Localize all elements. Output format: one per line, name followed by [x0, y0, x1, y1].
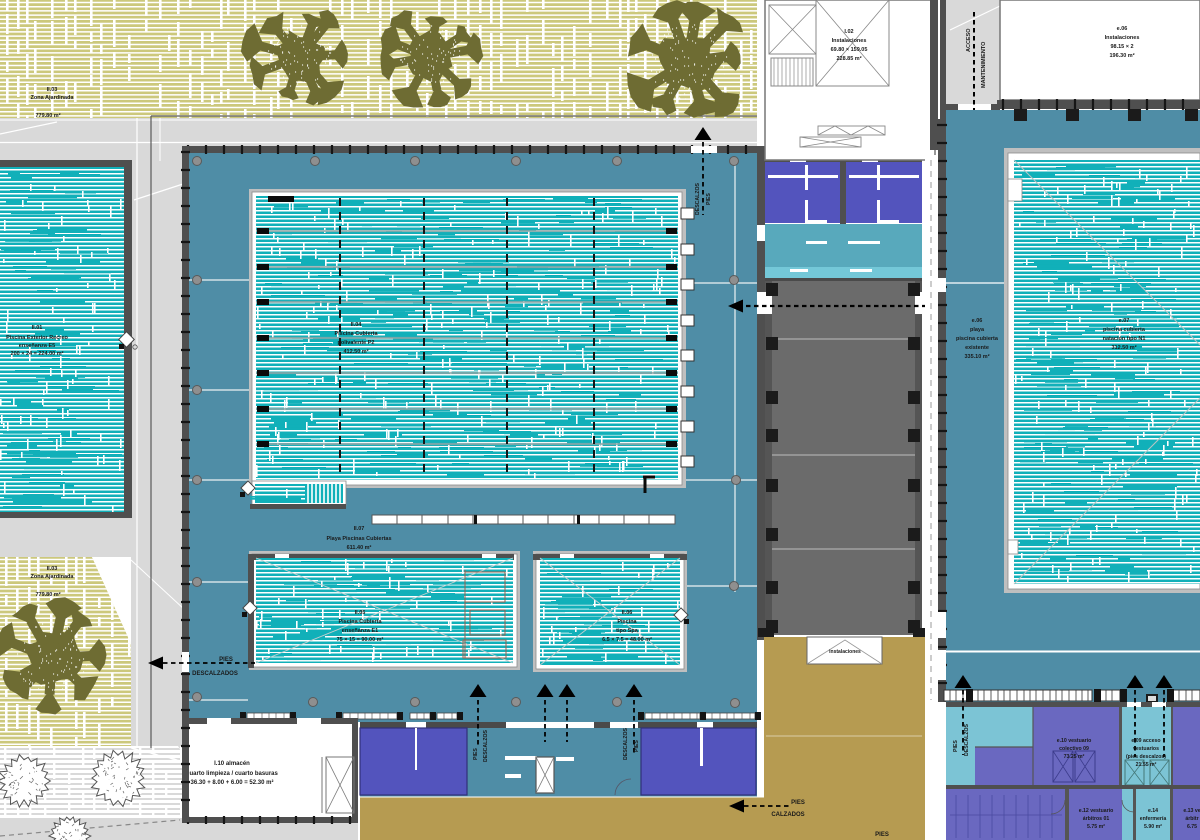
svg-text:DESCALZOS: DESCALZOS: [695, 182, 701, 215]
svg-text:enseñanza E5: enseñanza E5: [19, 343, 55, 349]
svg-text:II.03: II.03: [47, 566, 58, 572]
svg-text:Instalaciones: Instalaciones: [1105, 35, 1140, 41]
svg-text:DESCALZOS: DESCALZOS: [964, 723, 970, 756]
svg-text:I.02: I.02: [844, 29, 853, 35]
svg-text:DESCALZOS: DESCALZOS: [623, 727, 629, 760]
svg-text:73.25 m²: 73.25 m²: [1064, 754, 1085, 760]
svg-text:e.13 ve: e.13 ve: [1183, 808, 1200, 814]
svg-text:Piscina Cubierta: Piscina Cubierta: [338, 619, 382, 625]
svg-text:69.80 × 159.05: 69.80 × 159.05: [831, 47, 868, 53]
svg-text:PIES: PIES: [219, 657, 233, 663]
svg-text:5.90 m²: 5.90 m²: [1144, 824, 1162, 830]
svg-text:DESCALZOS: DESCALZOS: [483, 729, 489, 762]
svg-text:Zona Ajardinada: Zona Ajardinada: [31, 574, 75, 580]
svg-text:335.10 m²: 335.10 m²: [964, 353, 989, 360]
svg-text:(pies descalzos): (pies descalzos): [1126, 754, 1166, 760]
svg-text:Playa Piscinas Cubiertas: Playa Piscinas Cubiertas: [326, 536, 391, 542]
svg-text:enfermería: enfermería: [1140, 816, 1167, 822]
svg-text:PIES: PIES: [473, 748, 479, 760]
svg-text:611.40 m²: 611.40 m²: [347, 544, 372, 551]
svg-text:playa: playa: [970, 327, 985, 333]
svg-text:colectivo 09: colectivo 09: [1059, 746, 1089, 752]
svg-text:CALZADOS: CALZADOS: [771, 812, 804, 818]
svg-text:instalaciones: instalaciones: [829, 649, 861, 655]
svg-text:6.5 × 7.5 = 48.00 m²: 6.5 × 7.5 = 48.00 m²: [602, 636, 652, 643]
svg-text:árbitr: árbitr: [1185, 816, 1198, 822]
svg-text:228.85 m²: 228.85 m²: [836, 55, 861, 62]
svg-text:piscina cubierta: piscina cubierta: [956, 336, 999, 342]
svg-text:II.06: II.06: [622, 610, 633, 616]
svg-text:polivalente P2: polivalente P2: [338, 340, 375, 346]
svg-text:e.14: e.14: [1148, 808, 1158, 814]
svg-text:e.12 vestuario: e.12 vestuario: [1079, 808, 1114, 814]
svg-text:779.80 m²: 779.80 m²: [35, 112, 60, 119]
svg-text:piscina cubierta: piscina cubierta: [1103, 327, 1146, 333]
svg-text:existente: existente: [965, 345, 989, 351]
svg-text:200 × 24 = 224.00 m²: 200 × 24 = 224.00 m²: [11, 350, 64, 357]
svg-text:196.30 m²: 196.30 m²: [1109, 52, 1134, 59]
svg-text:MANTENIMIENTO: MANTENIMIENTO: [981, 41, 987, 88]
svg-text:PIES: PIES: [791, 800, 805, 806]
svg-text:II.03: II.03: [47, 87, 58, 93]
svg-text:vestuarios: vestuarios: [1133, 746, 1159, 752]
svg-text:6.75: 6.75: [1187, 824, 1197, 830]
svg-text:natación tipo N1: natación tipo N1: [1103, 336, 1146, 342]
svg-text:Zona Ajardinada: Zona Ajardinada: [31, 95, 75, 101]
svg-text:Piscina: Piscina: [617, 619, 637, 625]
svg-text:21.55 m²: 21.55 m²: [1136, 762, 1157, 768]
svg-text:Piscina Cubierta: Piscina Cubierta: [334, 331, 378, 337]
svg-text:e.06: e.06: [1117, 26, 1128, 32]
svg-text:PIES: PIES: [706, 193, 712, 205]
svg-text:II.04: II.04: [351, 322, 363, 328]
svg-text:75 × 15 = 90.00 m²: 75 × 15 = 90.00 m²: [337, 636, 384, 643]
svg-text:e.07: e.07: [1119, 318, 1130, 324]
svg-text:cuarto limpieza / cuarto basur: cuarto limpieza / cuarto basuras: [186, 771, 278, 777]
svg-text:II.01: II.01: [32, 325, 43, 331]
svg-text:PIES: PIES: [875, 832, 889, 838]
svg-text:779.80 m²: 779.80 m²: [35, 591, 60, 598]
svg-text:Instalaciones: Instalaciones: [832, 38, 867, 44]
svg-text:e.10 vestuario: e.10 vestuario: [1057, 738, 1092, 744]
svg-text:árbitros 01: árbitros 01: [1083, 816, 1110, 822]
svg-text:Piscina Exterior Recreo: Piscina Exterior Recreo: [6, 335, 68, 341]
svg-text:36.30 + 8.00 + 6.00 = 52.30 m²: 36.30 + 8.00 + 6.00 = 52.30 m²: [191, 779, 274, 786]
svg-text:e.06: e.06: [972, 318, 983, 324]
svg-text:312.50 m²: 312.50 m²: [1111, 344, 1136, 351]
svg-text:PIES: PIES: [634, 740, 640, 752]
svg-text:enseñanza E1: enseñanza E1: [342, 628, 378, 634]
svg-text:I.10 almacén: I.10 almacén: [214, 761, 250, 767]
svg-text:412.50 m²: 412.50 m²: [343, 348, 368, 355]
svg-text:98.15 × 2: 98.15 × 2: [1110, 44, 1133, 50]
svg-text:PIES: PIES: [953, 740, 959, 752]
svg-text:tipo Spa: tipo Spa: [616, 628, 639, 634]
svg-text:5.75 m²: 5.75 m²: [1087, 824, 1105, 830]
svg-text:ACCESO: ACCESO: [966, 28, 972, 52]
svg-text:DESCALZADOS: DESCALZADOS: [192, 671, 238, 677]
svg-text:II.05: II.05: [355, 610, 366, 616]
svg-text:II.07: II.07: [354, 526, 365, 532]
